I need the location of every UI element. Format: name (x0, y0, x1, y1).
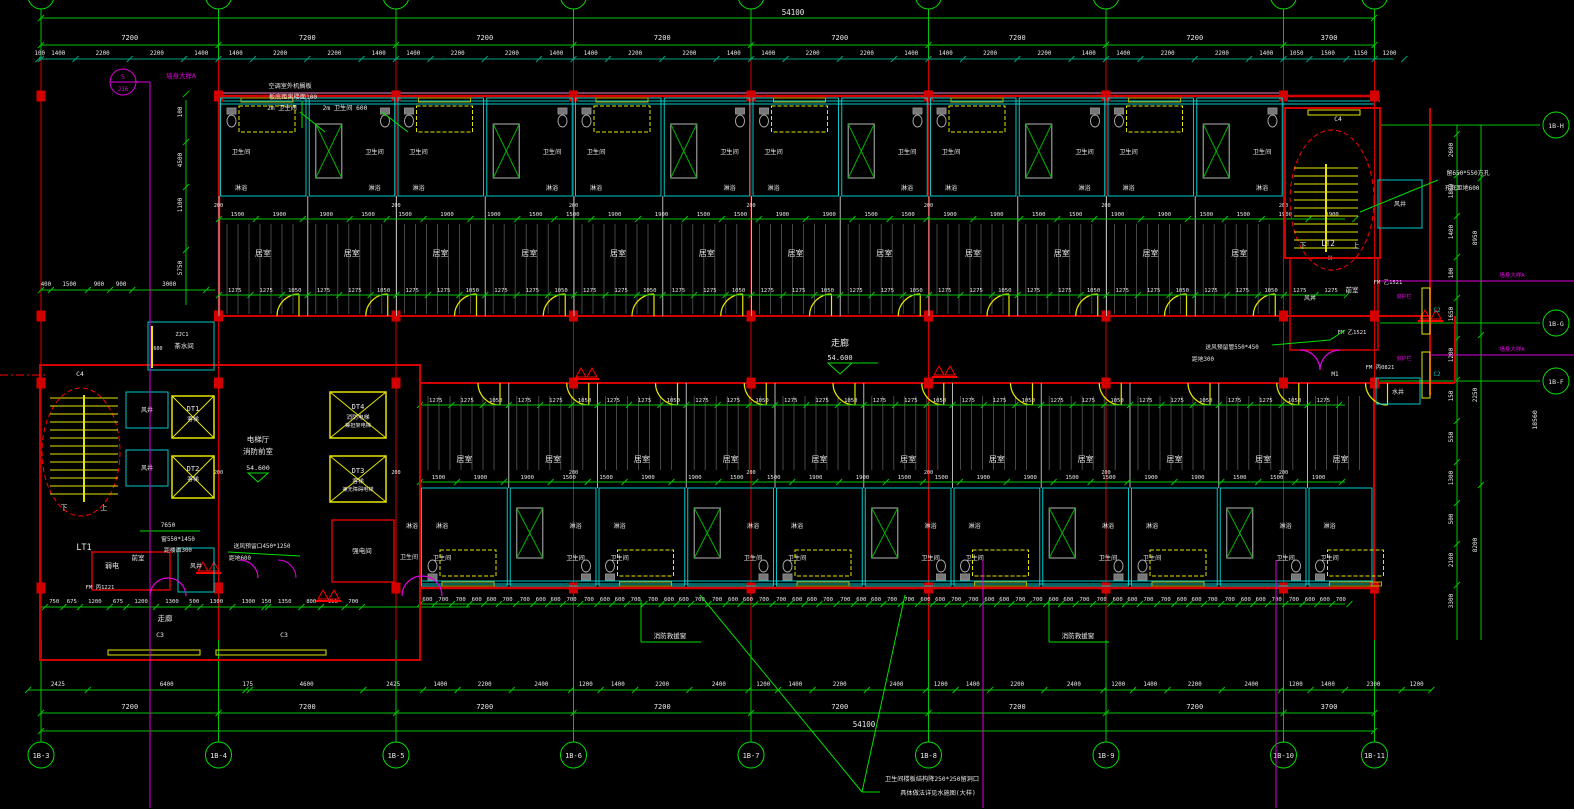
toilet-fixture (558, 108, 567, 114)
dim-detail-top: 2200 (96, 51, 110, 57)
dim-corridor-top: 1275 (792, 288, 805, 294)
dim-detail-bottom: 1200 (1289, 682, 1303, 688)
dim-room-top: 1500 (566, 212, 579, 218)
floor-plan-canvas: 1B-31B-41B-51B-61B-71B-81B-91B-101B-111B… (0, 0, 1574, 809)
door-arc (810, 294, 832, 316)
dim-bath-bottom: 600 (679, 597, 689, 603)
dim-room-top: 1900 (822, 212, 835, 218)
dim-right-b: 2250 (1472, 387, 1479, 402)
toilet-fixture (1115, 115, 1124, 127)
ac-platform (795, 550, 851, 576)
dim-detail-bottom: 4600 (300, 682, 314, 688)
toilet-fixture (937, 108, 946, 114)
dim-room-top: 1900 (1111, 212, 1124, 218)
dim-detail-bottom: 1400 (611, 682, 625, 688)
dim-right-a: 500 (1448, 513, 1455, 524)
room-label-bedroom: 居室 (989, 454, 1005, 464)
dim-corridor-bottom: 1275 (1228, 398, 1241, 404)
door-arc (987, 294, 1009, 316)
wall-detail-label: 墙身大样A (166, 71, 196, 80)
room-label-toilet: 卫生间 (400, 553, 418, 561)
dim-tick (1401, 56, 1407, 62)
dim-200: 200 (1279, 470, 1288, 476)
dim-bath-bottom: 600 (1127, 597, 1137, 603)
dim-left: 1100 (177, 197, 184, 212)
room-label-shower: 淋浴 (436, 522, 449, 530)
dim-bay-top: 7200 (299, 34, 316, 42)
dim-room-top: 1900 (990, 212, 1003, 218)
dim-detail-bottom: 1400 (788, 682, 802, 688)
dim-corridor-top: 1050 (643, 288, 656, 294)
dim-room-top: 1500 (734, 212, 747, 218)
grid-bubble-top (383, 0, 409, 9)
dim-corridor-bottom: 1050 (1288, 398, 1301, 404)
dim-bath-bottom: 700 (968, 597, 978, 603)
dim-detail-bottom: 1200 (579, 682, 593, 688)
dim-misc: 600 (153, 346, 162, 352)
note-wc2m: 2m 卫生间 600 (323, 104, 368, 112)
dim-room-bottom: 1900 (856, 475, 869, 481)
dim-corridor-top: 1275 (1115, 288, 1128, 294)
dim-wing-bottom: 1300 (242, 599, 255, 605)
dim-room-bottom: 1900 (1312, 475, 1325, 481)
dim-bay-bottom: 7200 (831, 703, 848, 711)
dim-corridor-bottom: 1275 (784, 398, 797, 404)
ac-platform (417, 106, 473, 132)
room-label-shower: 淋浴 (723, 184, 736, 192)
wall-junction (1371, 91, 1379, 101)
room-label-toilet: 卫生间 (1253, 148, 1272, 156)
dim-detail-bottom: 6400 (160, 682, 174, 688)
dim-bath-bottom: 700 (712, 597, 722, 603)
dim-detail-top: 2200 (1161, 51, 1175, 57)
dim-corridor-bottom: 1275 (1082, 398, 1095, 404)
dim-room-top: 1900 (273, 212, 286, 218)
fire-hydrant-icon (576, 368, 586, 377)
room-label-shower: 淋浴 (569, 522, 582, 530)
dim-corridor-top: 1050 (909, 288, 922, 294)
dim-room-top: 1500 (398, 212, 411, 218)
dim-right-a: 3300 (1448, 593, 1455, 608)
door-arc (366, 294, 388, 316)
stair-up: 上 (1353, 241, 1360, 250)
wall-junction (570, 91, 578, 101)
dim-wing-left: 400 (41, 282, 52, 288)
dim-corridor-top: 1275 (938, 288, 951, 294)
leader-line (300, 112, 325, 132)
dim-detail-bottom: 2425 (51, 682, 65, 688)
air-shaft-label: 风井 (141, 406, 153, 414)
door-tag: FM 乙1521 (1374, 279, 1403, 286)
dim-wing-bottom: 500 (189, 599, 199, 605)
dim-bay-bottom: 7200 (299, 703, 316, 711)
dim-tick (183, 91, 189, 97)
dim-detail-bottom: 2200 (1010, 682, 1024, 688)
ac-platform (772, 106, 828, 132)
elevator-type: 兼担架电梯 (345, 421, 371, 429)
grid-bubble-top (206, 0, 232, 9)
dim-bath-bottom: 700 (887, 597, 897, 603)
dim-bath-bottom: 600 (536, 597, 546, 603)
dim-corridor-top: 1275 (1027, 288, 1040, 294)
room-label-shower: 淋浴 (406, 522, 418, 530)
dim-detail-bottom: 2200 (655, 682, 669, 688)
toilet-fixture (1292, 560, 1301, 572)
dim-detail-bottom: 1200 (1111, 682, 1125, 688)
dim-bath-bottom: 600 (1049, 597, 1059, 603)
dim-bath-bottom: 700 (759, 597, 769, 603)
dim-detail-bottom: 1400 (433, 682, 447, 688)
room-label-shower: 淋浴 (945, 184, 958, 192)
dim-room-bottom: 1900 (641, 475, 654, 481)
door-arc (721, 294, 743, 316)
dim-corridor-top: 1050 (288, 288, 301, 294)
dim-detail-top: 1400 (194, 51, 208, 57)
dim-corridor-top: 1050 (1087, 288, 1100, 294)
dim-room-bottom: 1500 (767, 475, 780, 481)
wall-junction (1280, 378, 1288, 388)
dim-detail-top: 1050 (1289, 51, 1303, 57)
dim-room-top: 1900 (776, 212, 789, 218)
dim-bay-top: 7200 (654, 34, 671, 42)
toilet-fixture (1114, 574, 1123, 580)
dim-detail-bottom: 2300 (1366, 682, 1380, 688)
dim-detail-bottom: 1400 (1143, 682, 1157, 688)
level-label: 54.600 (246, 464, 270, 472)
room-label-shower: 淋浴 (1256, 184, 1269, 192)
dim-detail-top: 1400 (1259, 51, 1273, 57)
toilet-fixture (736, 115, 745, 127)
door-arc-magenta (150, 578, 168, 596)
detail-callout-num: 5 (121, 73, 125, 81)
dim-corridor-bottom: 1275 (606, 398, 619, 404)
dim-room-top: 1500 (1069, 212, 1082, 218)
note-ac: 空调室外机搁板 (268, 82, 311, 90)
stair-name: LT1 (76, 543, 91, 553)
dim-detail-bottom: 2425 (386, 682, 400, 688)
elevator-name: DT1 (187, 405, 200, 413)
toilet-fixture (381, 108, 390, 114)
dim-corridor-top: 1275 (348, 288, 361, 294)
grid-bubble-top (1362, 0, 1388, 9)
wall-junction (392, 378, 400, 388)
dim-room-bottom: 1900 (688, 475, 701, 481)
dim-wing-left: 900 (94, 282, 105, 288)
dim-corridor-top: 1050 (1264, 288, 1277, 294)
dim-bath-bottom: 600 (728, 597, 738, 603)
room-lobby (1290, 258, 1378, 350)
note-vent: 距地600 (229, 554, 252, 562)
dim-bath-bottom: 700 (648, 597, 658, 603)
dim-right-a: 550 (1448, 431, 1455, 442)
dim-room-top: 1900 (1325, 212, 1338, 218)
dim-bay-top: 7200 (1009, 34, 1026, 42)
room-label-bedroom: 居室 (965, 248, 981, 258)
dim-corridor-top: 1275 (614, 288, 627, 294)
wall-junction (570, 583, 578, 593)
dim-bath-bottom: 600 (1241, 597, 1251, 603)
room-label-toilet: 卫生间 (720, 148, 739, 156)
dim-left: 4500 (177, 152, 184, 167)
dim-room-bottom: 1900 (977, 475, 990, 481)
dim-detail-top: 2200 (505, 51, 519, 57)
room-label-shower: 淋浴 (412, 184, 425, 192)
ac-platform (949, 106, 1005, 132)
dim-detail-top: 2200 (451, 51, 465, 57)
dim-corridor-top: 1275 (760, 288, 773, 294)
window-tag: C2 (1433, 307, 1441, 314)
level-label: 54.600 (827, 354, 852, 362)
dim-detail-top: 2200 (806, 51, 820, 57)
dim-bath-bottom: 600 (999, 597, 1009, 603)
strong-power-label: 强电间 (352, 546, 372, 555)
dim-room-bottom: 1500 (432, 475, 445, 481)
dim-right-a: 1650 (1448, 306, 1455, 321)
tea-room-label: 茶水间 (174, 341, 194, 350)
cad-drawing-viewport[interactable]: 1B-31B-41B-51B-61B-71B-81B-91B-101B-111B… (0, 0, 1574, 809)
room-label-shower: 淋浴 (546, 184, 559, 192)
toilet-fixture (961, 574, 970, 580)
dim-wing-bottom: 1200 (134, 599, 147, 605)
dim-right-c: 18560 (1531, 410, 1539, 430)
dim-corridor-bottom: 1275 (638, 398, 651, 404)
toilet-fixture (227, 115, 236, 127)
door-arc-magenta (240, 560, 258, 578)
noop (278, 560, 296, 578)
dim-bath-bottom: 700 (840, 597, 850, 603)
dim-200: 200 (746, 203, 755, 209)
dim-200: 200 (924, 470, 933, 476)
grid-bubble-label: 1B-H (1548, 122, 1564, 130)
dim-corridor-top: 1275 (1293, 288, 1306, 294)
dim-wing-bottom: 1350 (278, 599, 291, 605)
room-label-bedroom: 居室 (723, 454, 739, 464)
stair-sweep (42, 388, 120, 516)
room-label-shower: 淋浴 (1323, 522, 1336, 530)
elevator-name: DT4 (352, 403, 365, 411)
dim-corridor-bottom: 1050 (667, 398, 680, 404)
dim-right-a: 150 (1448, 390, 1455, 401)
corridor-label: 走廊 (831, 337, 849, 349)
note-7650: 7650 (161, 522, 176, 529)
dim-detail-top: 2200 (273, 51, 287, 57)
dim-room-top: 1900 (487, 212, 500, 218)
dim-corridor-top: 1275 (583, 288, 596, 294)
wall-junction (1102, 378, 1110, 388)
dim-detail-bottom: 2400 (1067, 682, 1081, 688)
dim-room-top: 1500 (697, 212, 710, 218)
note-ac: 板底距离楼面100 (269, 93, 318, 101)
fire-hydrant-icon (945, 366, 955, 375)
dim-detail-bottom: 2400 (534, 682, 548, 688)
dim-200: 200 (1279, 203, 1288, 209)
grid-bubble-top (1271, 0, 1297, 9)
level-triangle (828, 363, 852, 374)
grid-bubble-label: 1B-4 (210, 752, 227, 760)
room-label-bedroom: 居室 (788, 248, 804, 258)
grid-bubble-label: 1B-8 (920, 752, 937, 760)
door-arc (277, 294, 299, 316)
wall-junction (1102, 583, 1110, 593)
detail-callout-sheet: J16 (118, 86, 129, 93)
dim-bath-bottom: 700 (1015, 597, 1025, 603)
room-label-bedroom: 居室 (545, 454, 561, 464)
wall-junction (1102, 91, 1110, 101)
shaft (178, 548, 214, 592)
dim-bath-bottom: 600 (792, 597, 802, 603)
room-label-toilet: 卫生间 (898, 148, 917, 156)
room-label-toilet: 卫生间 (232, 148, 251, 156)
dim-detail-top: 1400 (229, 51, 243, 57)
room-label-bedroom: 居室 (344, 248, 360, 258)
dim-right-a: 1300 (1448, 470, 1455, 485)
dim-room-bottom: 1900 (1144, 475, 1157, 481)
dim-bath-bottom: 600 (551, 597, 561, 603)
dim-room-top: 1500 (361, 212, 374, 218)
dim-room-bottom: 1900 (474, 475, 487, 481)
grid-bubble-label: 1B-5 (388, 752, 405, 760)
dim-bath-bottom: 700 (567, 597, 577, 603)
toilet-fixture (760, 115, 769, 127)
wall-junction (215, 583, 223, 593)
elevator-type: 客梯 (352, 477, 364, 485)
dim-room-top: 1900 (608, 212, 621, 218)
wall-junction (747, 378, 755, 388)
dim-room-bottom: 1500 (599, 475, 612, 481)
dim-right-a: 2600 (1448, 142, 1455, 157)
dim-room-top: 1500 (529, 212, 542, 218)
grid-bubble-label: 1B-11 (1364, 752, 1385, 760)
grid-bubble-label: 1B-7 (743, 752, 760, 760)
dim-bath-bottom: 700 (951, 597, 961, 603)
note-hole: 留650*550方孔 (1446, 169, 1489, 177)
dim-wing-bottom: 700 (348, 599, 358, 605)
door-arc (898, 294, 920, 316)
dim-bath-bottom: 700 (438, 597, 448, 603)
dim-room-top: 1900 (655, 212, 668, 218)
note-vent: 送风预留管550*450 (1205, 343, 1259, 351)
dim-bath-bottom: 600 (807, 597, 817, 603)
room-label-bedroom: 居室 (1231, 248, 1247, 258)
dim-corridor-bottom: 1275 (1259, 398, 1272, 404)
dim-bath-bottom: 600 (871, 597, 881, 603)
room-label-shower: 淋浴 (590, 184, 603, 192)
toilet-fixture (1292, 574, 1301, 580)
toilet-fixture (913, 108, 922, 114)
dim-bath-bottom: 600 (422, 597, 432, 603)
note-vent: 距地300 (1192, 355, 1215, 363)
ac-platform (973, 550, 1029, 576)
window-tag: C4 (1334, 115, 1342, 123)
dim-bath-bottom: 600 (984, 597, 994, 603)
dim-bath-bottom: 600 (920, 597, 930, 603)
fire-lobby-label: 消防前室 (243, 446, 273, 456)
window-rail-label: 窗护栏 (1396, 355, 1411, 362)
room-label-bedroom: 居室 (521, 248, 537, 258)
toilet-fixture (1091, 115, 1100, 127)
dim-detail-top: 1400 (549, 51, 563, 57)
dim-room-top: 1500 (1032, 212, 1045, 218)
leader-line (700, 595, 862, 792)
dim-corridor-top: 1050 (821, 288, 834, 294)
stair-name: LT2 (1321, 239, 1335, 248)
dim-detail-top: 1400 (1116, 51, 1130, 57)
toilet-fixture (1316, 574, 1325, 580)
dim-corridor-bottom: 1275 (815, 398, 828, 404)
dim-bath-bottom: 600 (856, 597, 866, 603)
dim-corridor-bottom: 1050 (933, 398, 946, 404)
window-strip (108, 650, 200, 655)
dim-200: 200 (214, 203, 223, 209)
grid-bubble-top (916, 0, 942, 9)
dim-corridor-bottom: 1275 (695, 398, 708, 404)
dim-bath-bottom: 600 (935, 597, 945, 603)
grid-bubble-label: 1B-F (1548, 378, 1564, 386)
toilet-fixture (405, 108, 414, 114)
room-label-bedroom: 居室 (634, 454, 650, 464)
dim-overall-top: 54100 (782, 8, 805, 17)
room-label-bedroom: 居室 (876, 248, 892, 258)
dim-room-top: 1900 (319, 212, 332, 218)
dim-bath-bottom: 700 (1225, 597, 1235, 603)
dim-room-bottom: 1900 (809, 475, 822, 481)
elevator-type: 客梯 (187, 415, 199, 423)
room-label-shower: 淋浴 (968, 522, 981, 530)
wall-junction (392, 91, 400, 101)
window-tag: C2 (1433, 371, 1441, 378)
dim-detail-top: 2200 (1215, 51, 1229, 57)
dim-left: 5750 (177, 260, 184, 275)
dim-corridor-bottom: 1275 (904, 398, 917, 404)
dim-bath-bottom: 600 (1177, 597, 1187, 603)
dim-room-top: 1500 (231, 212, 244, 218)
window-tag: C3 (156, 631, 164, 639)
toilet-fixture (582, 560, 591, 572)
dim-detail-top: 2200 (983, 51, 997, 57)
dim-wing-bottom: 150 (261, 599, 271, 605)
dim-corridor-top: 1050 (377, 288, 390, 294)
dim-bath-bottom: 700 (1097, 597, 1107, 603)
wall-junction (1280, 91, 1288, 101)
note-slab: 具体做法详见水施图(大样) (900, 789, 976, 797)
toilet-fixture (582, 115, 591, 127)
dim-bath-bottom: 600 (486, 597, 496, 603)
fire-hydrant-icon (318, 590, 328, 599)
dim-200: 200 (391, 203, 400, 209)
room-label-shower: 淋浴 (767, 184, 780, 192)
dim-corridor-top: 1275 (881, 288, 894, 294)
dim-corridor-bottom: 1050 (1022, 398, 1035, 404)
door-arc (632, 294, 654, 316)
dim-corridor-bottom: 1275 (1050, 398, 1063, 404)
dim-corridor-top: 1275 (969, 288, 982, 294)
room-label-shower: 淋浴 (235, 184, 248, 192)
dim-corridor-bottom: 1275 (429, 398, 442, 404)
dim-detail-bottom: 2200 (1188, 682, 1202, 688)
wall-junction (392, 583, 400, 593)
dim-bay-bottom: 7200 (1009, 703, 1026, 711)
dim-bay-bottom: 7200 (1186, 703, 1203, 711)
dim-detail-bottom: 1200 (756, 682, 770, 688)
room-label-bedroom: 居室 (1078, 454, 1094, 464)
dim-room-top: 1500 (1200, 212, 1213, 218)
elevator-name: DT2 (187, 465, 200, 473)
dim-wing-bottom: 1300 (210, 599, 223, 605)
dim-detail-top: 2200 (860, 51, 874, 57)
dim-detail-top: 1400 (1082, 51, 1096, 57)
dim-bath-bottom: 700 (1208, 597, 1218, 603)
dim-corridor-bottom: 1275 (1316, 398, 1329, 404)
